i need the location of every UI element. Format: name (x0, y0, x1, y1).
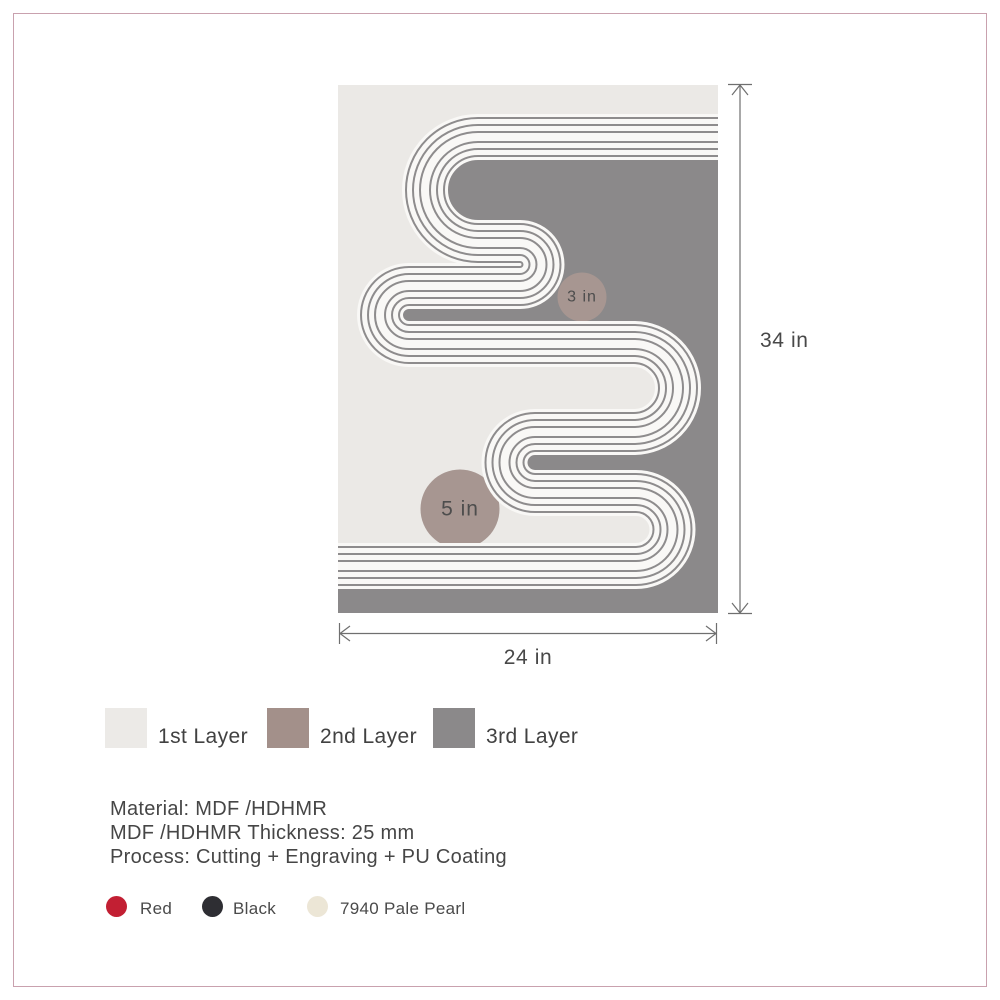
height-dimension-arrow (727, 78, 753, 620)
finish-dot-red (106, 896, 127, 917)
finish-label-black: Black (233, 899, 276, 919)
legend-swatch-1st-layer (105, 708, 147, 748)
finish-label-red: Red (140, 899, 172, 919)
circle-label-3in: 3 in (567, 289, 597, 306)
legend-label-2nd-layer: 2nd Layer (320, 725, 417, 749)
spec-line-thickness: MDF /HDHMR Thickness: 25 mm (110, 821, 507, 845)
finish-dot-black (202, 896, 223, 917)
specs-block: Material: MDF /HDHMR MDF /HDHMR Thicknes… (110, 797, 507, 869)
legend-swatch-2nd-layer (267, 708, 309, 748)
artwork-poster: 3 in 5 in (338, 85, 718, 613)
height-label: 34 in (760, 329, 809, 353)
spec-line-material: Material: MDF /HDHMR (110, 797, 507, 821)
width-label: 24 in (333, 646, 723, 670)
width-dimension-arrow (333, 621, 723, 647)
legend-label-3rd-layer: 3rd Layer (486, 725, 578, 749)
finish-dot-pale-pearl (307, 896, 328, 917)
circle-label-5in: 5 in (441, 498, 479, 521)
finish-label-pale-pearl: 7940 Pale Pearl (340, 899, 465, 919)
spec-line-process: Process: Cutting + Engraving + PU Coatin… (110, 845, 507, 869)
page: 3 in 5 in 34 in 24 in 1st Layer 2nd Laye… (0, 0, 1000, 1000)
legend-label-1st-layer: 1st Layer (158, 725, 248, 749)
legend-swatch-3rd-layer (433, 708, 475, 748)
